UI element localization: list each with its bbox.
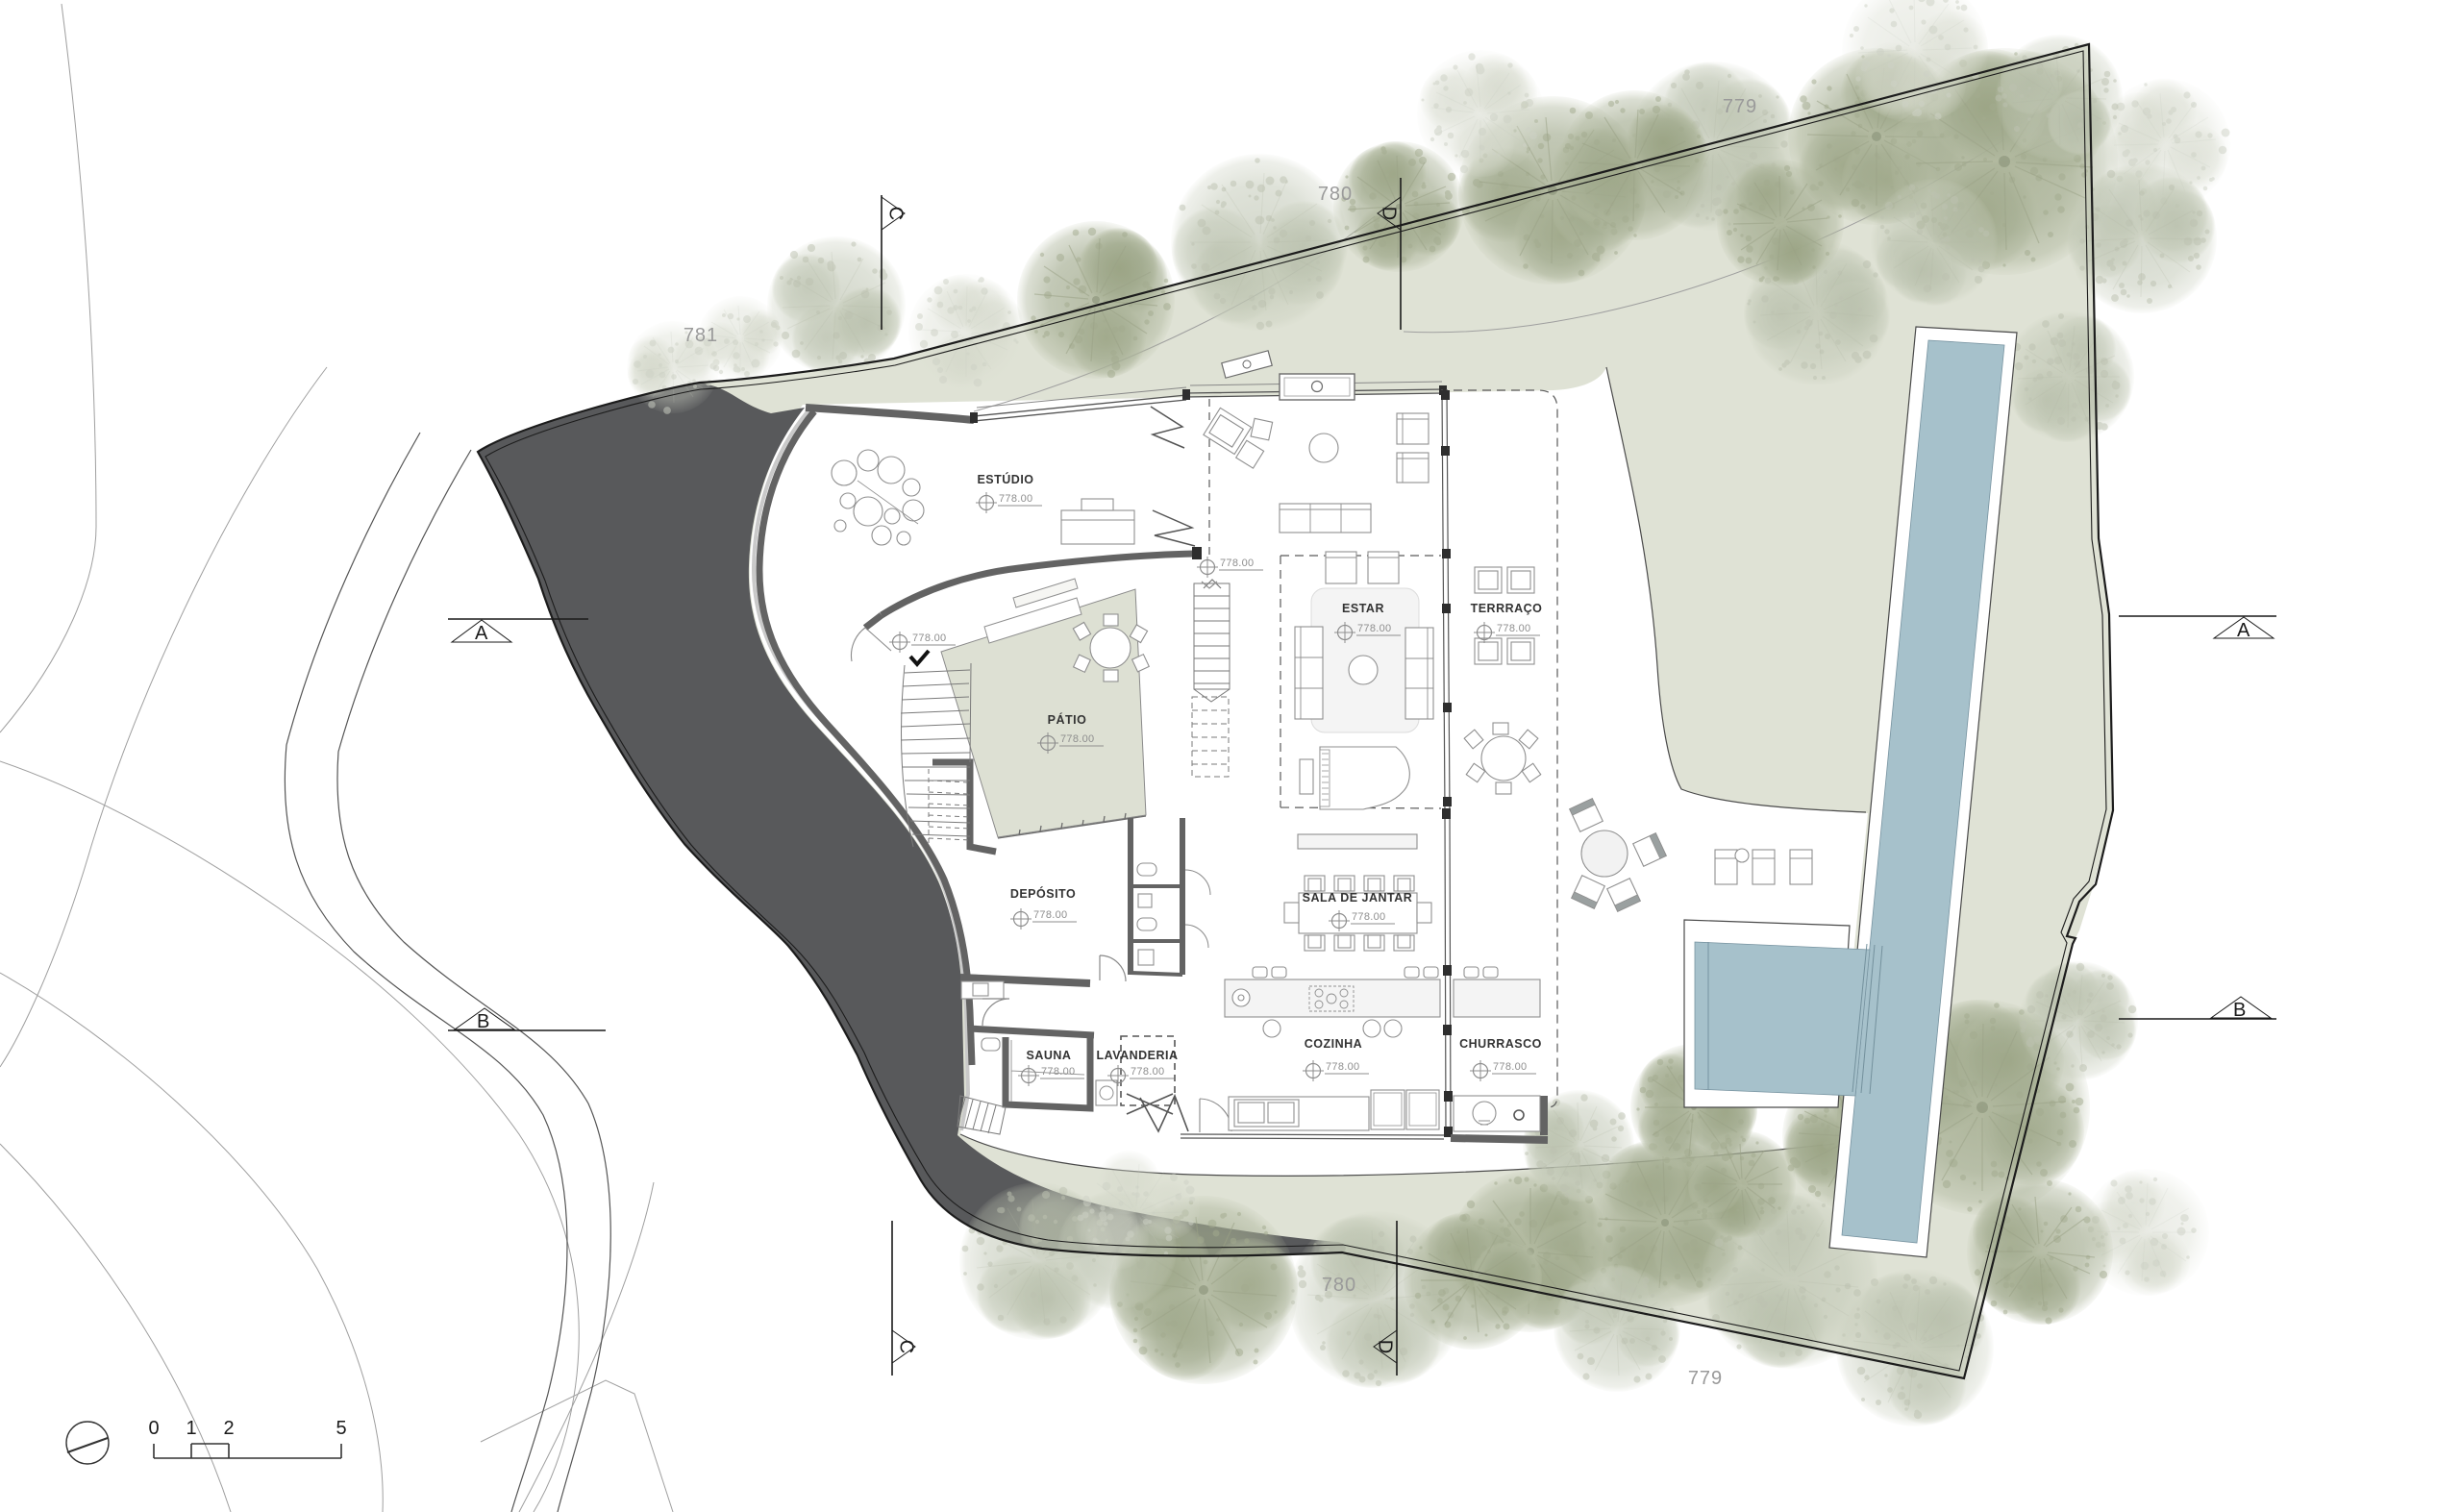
svg-text:778.00: 778.00 (999, 493, 1032, 505)
svg-text:ESTAR: ESTAR (1342, 602, 1384, 615)
svg-text:LAVANDERIA: LAVANDERIA (1096, 1049, 1178, 1062)
svg-text:779: 779 (1723, 96, 1757, 117)
svg-text:PÁTIO: PÁTIO (1048, 712, 1087, 727)
svg-text:TERRRAÇO: TERRRAÇO (1471, 602, 1543, 615)
svg-text:SALA DE JANTAR: SALA DE JANTAR (1303, 891, 1413, 905)
svg-text:C: C (896, 1340, 917, 1353)
svg-text:778.00: 778.00 (1131, 1066, 1164, 1078)
svg-text:5: 5 (336, 1418, 346, 1439)
svg-text:D: D (1379, 207, 1400, 220)
svg-text:DEPÓSITO: DEPÓSITO (1010, 886, 1076, 901)
svg-text:1: 1 (186, 1418, 196, 1439)
svg-text:778.00: 778.00 (1493, 1061, 1527, 1073)
svg-text:D: D (1375, 1340, 1396, 1353)
svg-text:C: C (885, 207, 907, 220)
svg-text:779: 779 (1688, 1368, 1723, 1389)
svg-text:CHURRASCO: CHURRASCO (1459, 1037, 1542, 1051)
svg-text:778.00: 778.00 (1352, 911, 1385, 923)
svg-text:781: 781 (684, 325, 718, 346)
svg-text:0: 0 (148, 1418, 159, 1439)
svg-text:778.00: 778.00 (1220, 558, 1254, 569)
svg-text:778.00: 778.00 (1497, 623, 1530, 634)
svg-text:778.00: 778.00 (1357, 623, 1391, 634)
svg-text:A: A (475, 623, 488, 644)
svg-text:ESTÚDIO: ESTÚDIO (977, 472, 1033, 486)
svg-text:780: 780 (1318, 184, 1353, 205)
svg-text:2: 2 (223, 1418, 234, 1439)
svg-text:B: B (2233, 1000, 2246, 1021)
svg-text:778.00: 778.00 (1033, 909, 1067, 921)
svg-text:COZINHA: COZINHA (1305, 1037, 1362, 1051)
svg-text:SAUNA: SAUNA (1027, 1049, 1072, 1062)
svg-text:A: A (2237, 620, 2250, 641)
svg-text:778.00: 778.00 (912, 632, 946, 644)
svg-text:778.00: 778.00 (1041, 1066, 1075, 1078)
svg-text:778.00: 778.00 (1060, 733, 1094, 745)
svg-text:778.00: 778.00 (1326, 1061, 1359, 1073)
svg-text:B: B (477, 1011, 489, 1032)
svg-text:780: 780 (1322, 1275, 1356, 1296)
